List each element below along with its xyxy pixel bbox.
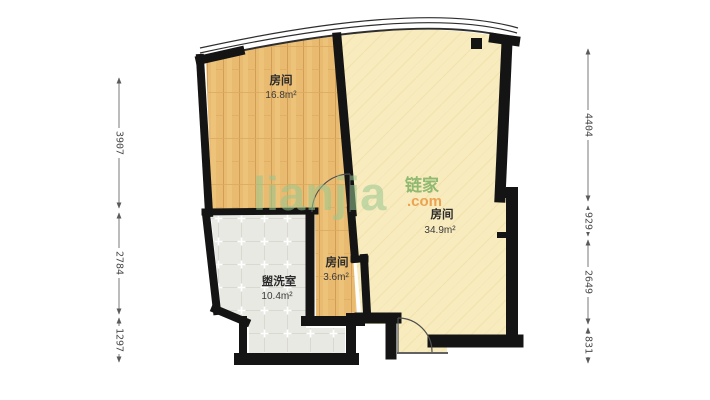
dimension-right: 4404 929 2649 831	[582, 49, 594, 363]
washroom-area: 10.4m²	[261, 291, 293, 302]
bedroom-left-area: 16.8m²	[265, 90, 297, 101]
dim-right-4: 831	[583, 336, 594, 354]
floorplan-drawing: 房间 16.8m² 房间 34.9m² 房间 3.6m² 盥洗室 10.4m² …	[0, 0, 710, 400]
hall-small-label: 房间	[326, 255, 349, 269]
dim-left-2: 2784	[114, 251, 125, 275]
bedroom-left-label: 房间	[270, 73, 293, 87]
dim-left-3: 1297	[114, 328, 125, 352]
washroom-label: 盥洗室	[262, 274, 297, 288]
dim-right-3: 2649	[583, 270, 594, 294]
dimension-left: 3907 2784 1297	[113, 78, 125, 362]
dim-left-1: 3907	[114, 131, 125, 155]
bedroom-right-area: 34.9m²	[424, 225, 456, 236]
dim-right-1: 4404	[583, 113, 594, 137]
room-floors	[206, 30, 512, 354]
hall-small-area: 3.6m²	[323, 272, 349, 283]
floorplan-canvas: 房间 16.8m² 房间 34.9m² 房间 3.6m² 盥洗室 10.4m² …	[0, 0, 710, 400]
bedroom-left-floor	[206, 36, 352, 214]
bedroom-right-label: 房间	[431, 207, 454, 221]
dim-right-2: 929	[583, 212, 594, 230]
